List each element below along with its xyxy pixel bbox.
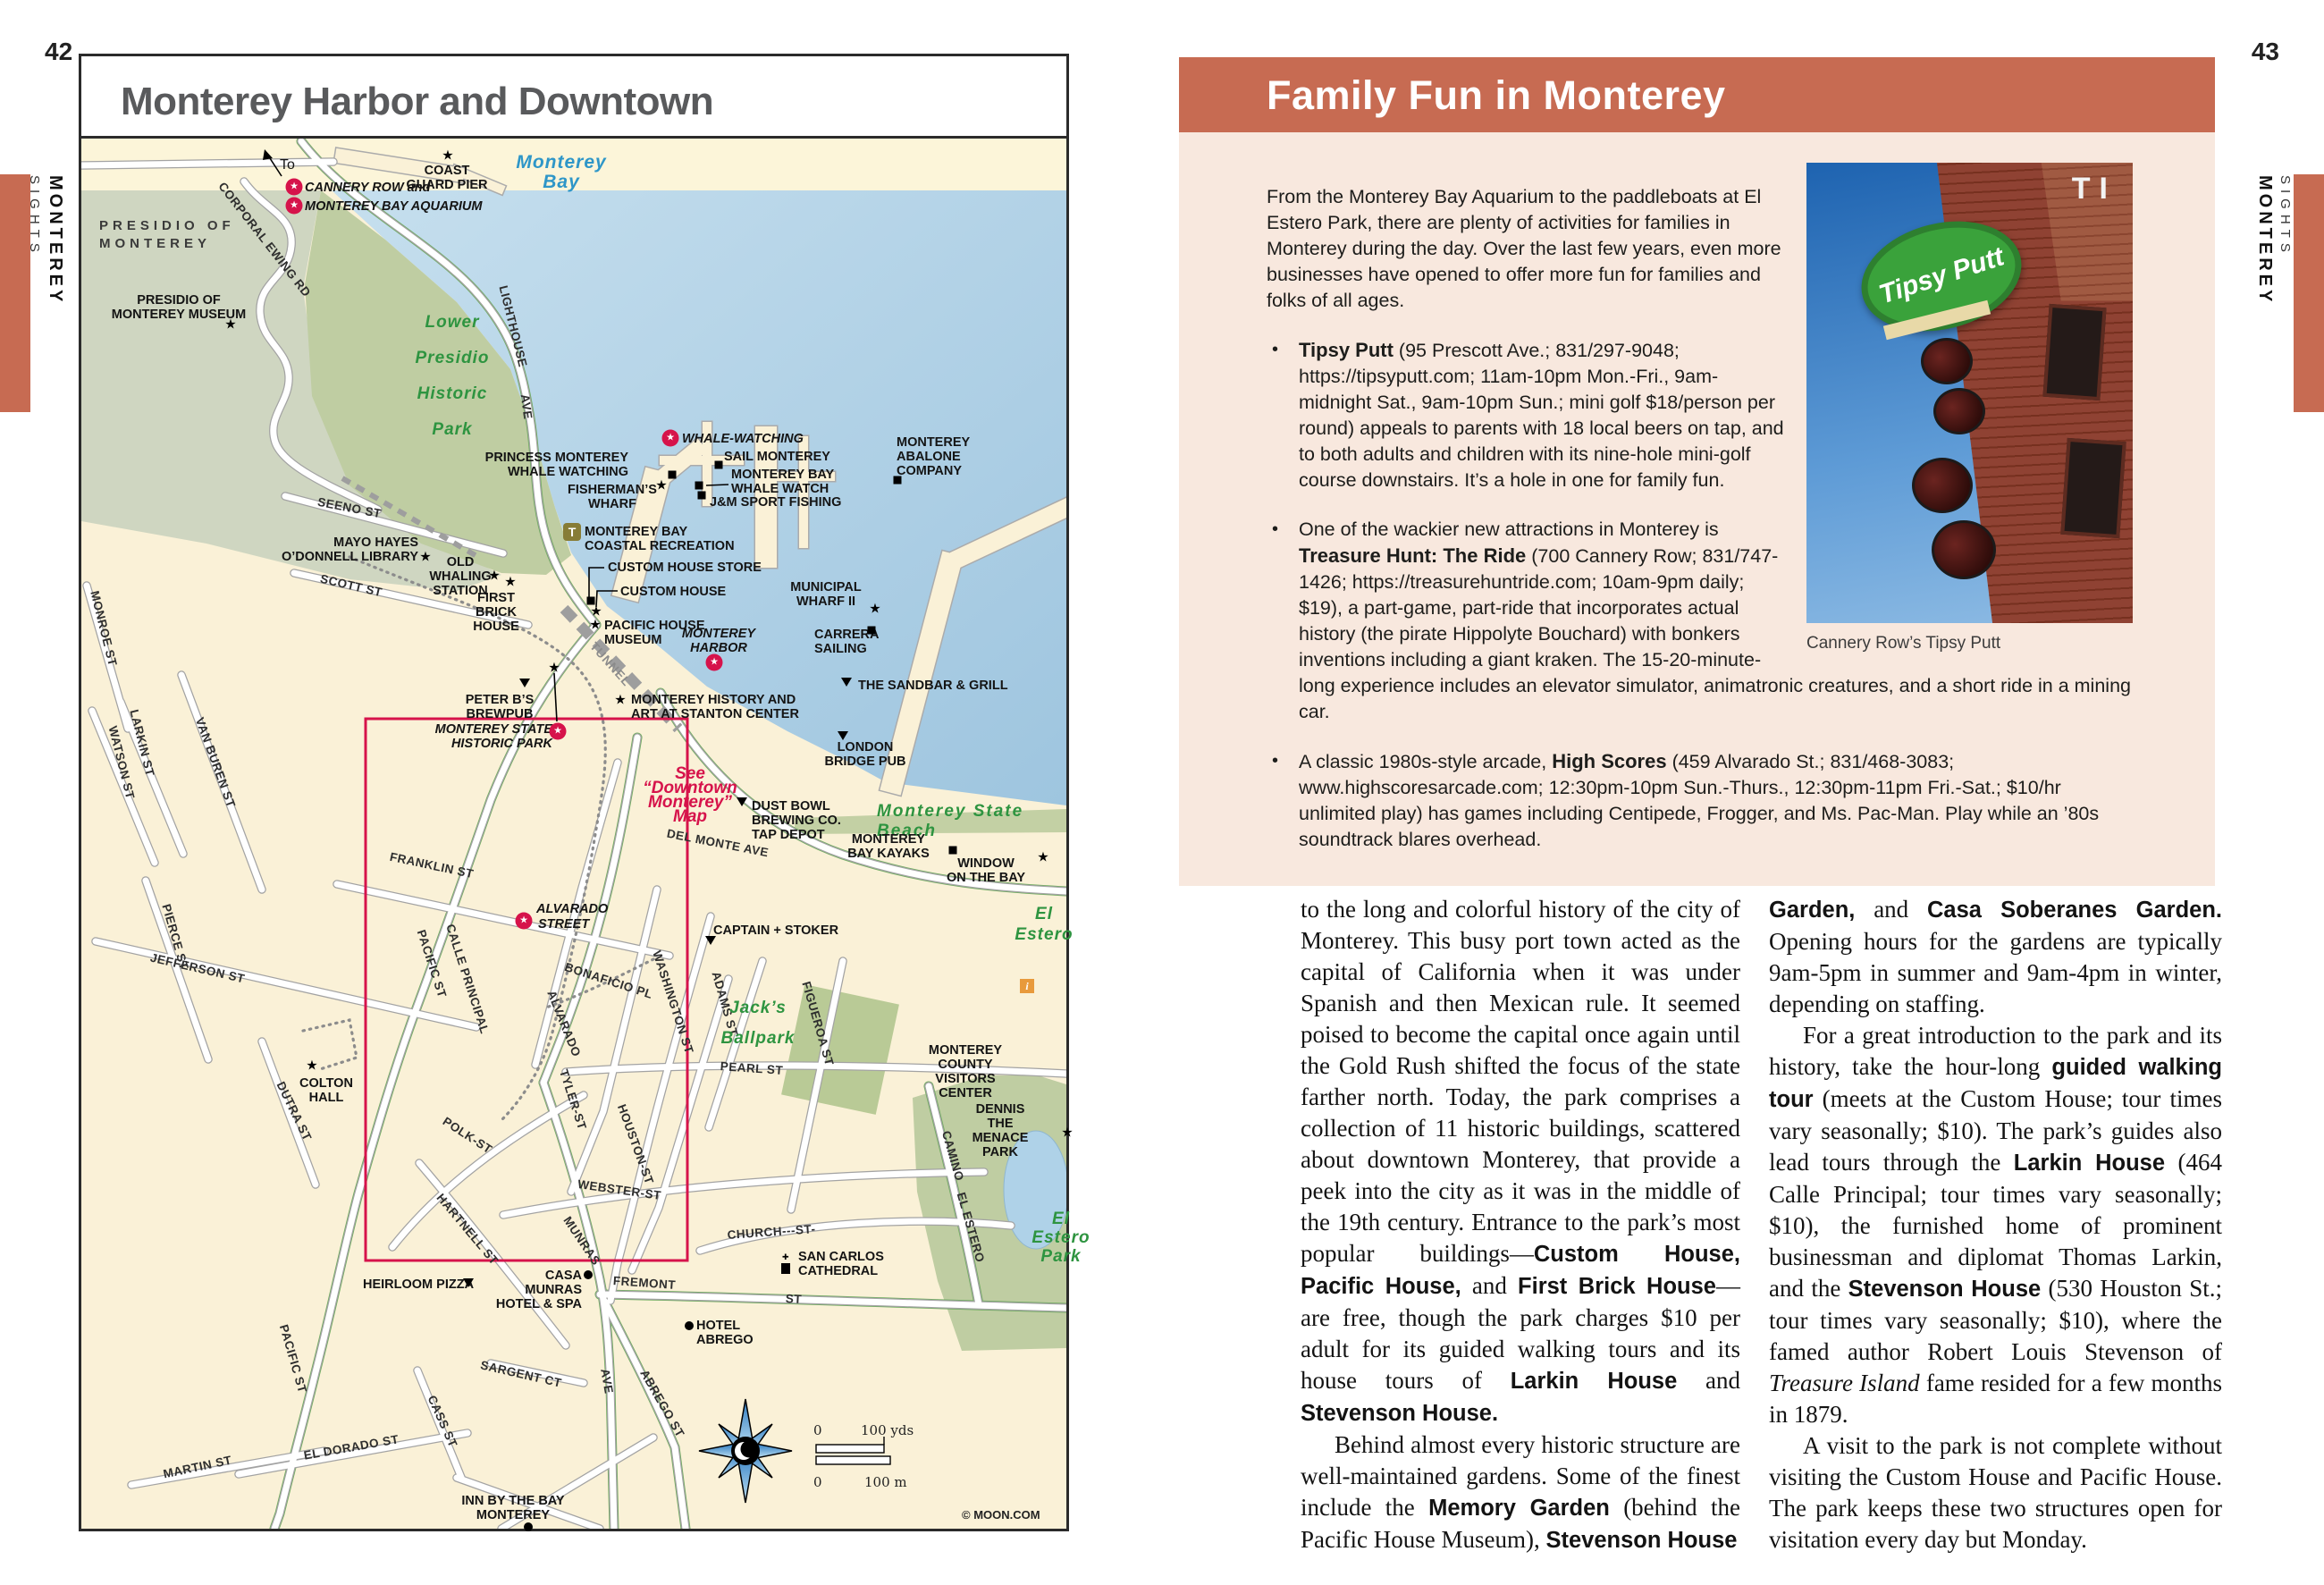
map-label: El Estero Park bbox=[1031, 1210, 1090, 1266]
map-monterey-harbor: ToCANNERY ROW andMONTEREY BAY AQUARIUMCO… bbox=[79, 54, 1069, 1531]
map-label: Jack’s Ballpark bbox=[721, 993, 796, 1054]
star-icon: ★ bbox=[1061, 1126, 1073, 1140]
square-marker-icon bbox=[695, 482, 703, 490]
square-marker-icon bbox=[698, 492, 706, 500]
edge-label-monterey-right: MONTEREY bbox=[2254, 175, 2275, 305]
article-column-right: Garden, and Casa Soberanes Garden. Openi… bbox=[1769, 894, 2222, 1555]
book-spread: 42 SIGHTS MONTEREY 43 MONTEREY SIGHTS bbox=[0, 0, 2324, 1585]
map-label: MONTEREY BAY WHALE WATCH bbox=[731, 468, 834, 496]
map-label: WHALE-WATCHING bbox=[682, 432, 804, 446]
map-label: CAPTAIN + STOKER bbox=[713, 923, 838, 938]
text-run: and bbox=[1461, 1272, 1518, 1299]
page-number-right: 43 bbox=[2239, 38, 2279, 66]
edge-label-monterey-left: MONTEREY bbox=[45, 175, 65, 305]
family-fun-bullet: One of the wackier new attractions in Mo… bbox=[1267, 517, 2133, 725]
star-icon: ★ bbox=[488, 569, 500, 583]
map-label: STREET bbox=[538, 917, 589, 932]
map-title-bar: Monterey Harbor and Downtown bbox=[81, 56, 1066, 139]
sight-star-icon: ★ bbox=[516, 913, 533, 930]
article-paragraph: A visit to the park is not complete with… bbox=[1769, 1430, 2222, 1555]
page-number-left: 42 bbox=[45, 38, 72, 66]
square-marker-icon bbox=[949, 847, 957, 855]
triangle-marker-icon bbox=[705, 936, 716, 945]
map-label: 100 yds bbox=[861, 1422, 914, 1438]
map-label: MONTEREY COUNTY VISITORS CENTER bbox=[915, 1043, 1016, 1100]
sight-star-icon: ★ bbox=[706, 654, 723, 671]
triangle-marker-icon bbox=[737, 797, 747, 806]
map-label: PRINCESS MONTEREY WHALE WATCHING bbox=[485, 451, 628, 479]
map-label: 0 bbox=[813, 1474, 822, 1490]
text-run: One of the wackier new attractions in Mo… bbox=[1299, 518, 1719, 540]
article-paragraph: to the long and colorful history of the … bbox=[1301, 894, 1740, 1429]
article-paragraph: For a great introduction to the park and… bbox=[1769, 1020, 2222, 1430]
map-label: El Estero bbox=[1015, 904, 1073, 945]
map-label: THE SANDBAR & GRILL bbox=[858, 679, 1008, 693]
tipsy-putt-sign-text: Tipsy Putt bbox=[1875, 242, 2008, 311]
map-label: DENNIS THE MENACE PARK bbox=[967, 1102, 1033, 1159]
map-label: PETER B’S BREWPUB bbox=[466, 693, 535, 721]
map-label: MONTEREY STATE HISTORIC PARK bbox=[435, 722, 552, 751]
triangle-marker-icon bbox=[463, 1278, 474, 1287]
map-label: SAIL MONTEREY bbox=[724, 450, 830, 464]
star-icon: ★ bbox=[306, 1059, 317, 1073]
triangle-marker-icon bbox=[841, 678, 852, 687]
family-fun-bullet-list: Tipsy Putt (95 Prescott Ave.; 831/297-90… bbox=[1267, 337, 2133, 853]
star-icon: ★ bbox=[1037, 851, 1048, 864]
star-icon: ★ bbox=[419, 551, 431, 564]
sight-star-icon: ★ bbox=[286, 179, 303, 196]
map-label: FISHERMAN’S WHARF bbox=[568, 483, 657, 511]
map-label: HEIRLOOM PIZZA bbox=[363, 1277, 474, 1292]
italic-term: Treasure Island bbox=[1769, 1370, 1920, 1396]
map-label: WINDOW ON THE BAY bbox=[947, 856, 1025, 885]
edge-label-sights-left: SIGHTS bbox=[27, 175, 42, 257]
family-fun-bullet: A classic 1980s-style arcade, High Score… bbox=[1267, 748, 2133, 853]
map-label: CUSTOM HOUSE STORE bbox=[608, 561, 762, 575]
map-label: MAYO HAYES O’DONNELL LIBRARY bbox=[282, 535, 418, 564]
family-fun-title: Family Fun in Monterey bbox=[1179, 57, 2215, 119]
star-icon: ★ bbox=[869, 603, 880, 616]
map-label: Lower Presidio Historic Park bbox=[416, 305, 490, 448]
square-marker-icon bbox=[868, 627, 876, 635]
bold-term: Stevenson House bbox=[1545, 1528, 1737, 1553]
map-label: INN BY THE BAY MONTEREY bbox=[461, 1494, 564, 1522]
sight-star-icon: ★ bbox=[286, 198, 303, 215]
map-label: J&M SPORT FISHING bbox=[710, 495, 841, 510]
bold-term: Tipsy Putt bbox=[1299, 339, 1394, 361]
text-run: to the long and colorful history of the … bbox=[1301, 896, 1740, 1267]
square-marker-icon bbox=[669, 471, 677, 479]
star-icon: ★ bbox=[504, 576, 516, 589]
map-label: MONTEREY ABALONE COMPANY bbox=[897, 435, 970, 478]
map-label: MUNICIPAL WHARF II bbox=[790, 580, 861, 609]
text-run: A visit to the park is not complete with… bbox=[1769, 1432, 2222, 1553]
map-label: MONTEREY BAY KAYAKS bbox=[847, 832, 930, 861]
star-icon: ★ bbox=[590, 605, 602, 619]
edge-tab-right bbox=[2294, 174, 2324, 412]
bold-term: Larkin House bbox=[1511, 1369, 1678, 1394]
map-label: To bbox=[280, 157, 295, 173]
map-label: SAN CARLOS CATHEDRAL bbox=[798, 1250, 884, 1278]
star-icon: ★ bbox=[614, 694, 626, 707]
text-run: (700 Cannery Row; 831/747-1426; https://… bbox=[1299, 545, 2131, 722]
bold-term: First Brick House bbox=[1518, 1274, 1716, 1299]
map-label: MONTEREY BAY COASTAL RECREATION bbox=[585, 525, 735, 553]
text-run: A classic 1980s-style arcade, bbox=[1299, 751, 1552, 772]
star-icon: ★ bbox=[442, 149, 453, 163]
church-icon bbox=[779, 1256, 793, 1274]
map-label: © MOON.COM bbox=[962, 1508, 1040, 1522]
map-label: DUST BOWL BREWING CO. TAP DEPOT bbox=[752, 799, 841, 842]
article-column-left: to the long and colorful history of the … bbox=[1301, 894, 1740, 1556]
text-run: and bbox=[1677, 1367, 1740, 1394]
article-paragraph: Garden, and Casa Soberanes Garden. Openi… bbox=[1769, 894, 2222, 1020]
map-label: Monterey Bay bbox=[516, 153, 606, 192]
map-label: FIRST BRICK HOUSE bbox=[473, 591, 519, 634]
map-label: MONTEREY HARBOR bbox=[682, 627, 755, 655]
triangle-marker-icon bbox=[519, 679, 530, 687]
map-label: PRESIDIO OF MONTEREY bbox=[99, 217, 235, 253]
bold-term: Memory Garden bbox=[1428, 1496, 1610, 1521]
map-label: MONTEREY HISTORY AND ART AT STANTON CENT… bbox=[631, 693, 799, 721]
map-label: CUSTOM HOUSE bbox=[620, 585, 726, 599]
article-paragraph: Behind almost every historic structure a… bbox=[1301, 1429, 1740, 1556]
text-run: Opening hours for the gardens are typica… bbox=[1769, 928, 2222, 1017]
map-label: LONDON BRIDGE PUB bbox=[824, 740, 905, 769]
text-run: and bbox=[1855, 896, 1927, 923]
star-icon: ★ bbox=[655, 479, 667, 493]
sight-star-icon: ★ bbox=[662, 430, 679, 447]
dot-marker-icon bbox=[524, 1522, 533, 1531]
family-fun-bullet: Tipsy Putt (95 Prescott Ave.; 831/297-90… bbox=[1267, 337, 2133, 493]
square-marker-icon bbox=[894, 476, 902, 485]
info-icon: i bbox=[1020, 979, 1034, 993]
square-marker-icon bbox=[715, 461, 723, 469]
dot-marker-icon bbox=[685, 1321, 694, 1330]
triangle-marker-icon bbox=[838, 731, 848, 740]
star-icon: ★ bbox=[589, 619, 601, 632]
map-label: 0 bbox=[813, 1422, 822, 1438]
dot-marker-icon bbox=[584, 1270, 593, 1279]
map-title: Monterey Harbor and Downtown bbox=[81, 56, 1066, 124]
map-label: COLTON HALL bbox=[299, 1076, 353, 1105]
map-label: HOTEL ABREGO bbox=[696, 1319, 754, 1347]
bold-term: Garden, bbox=[1769, 898, 1855, 923]
family-fun-header: Family Fun in Monterey bbox=[1179, 57, 2215, 132]
map-label: 100 m bbox=[864, 1474, 907, 1490]
edge-tab-left bbox=[0, 174, 30, 412]
star-icon: ★ bbox=[224, 318, 236, 332]
family-fun-body: TI Tipsy Putt Cannery Row’s Tipsy Putt F… bbox=[1179, 132, 2215, 853]
family-fun-box: Family Fun in Monterey TI Tipsy Putt bbox=[1179, 57, 2215, 886]
transit-icon: T bbox=[563, 523, 581, 541]
star-icon: ★ bbox=[548, 662, 560, 675]
map-label: ALVARADO bbox=[536, 902, 608, 916]
edge-label-sights-right: SIGHTS bbox=[2278, 175, 2293, 257]
bold-term: Treasure Hunt: The Ride bbox=[1299, 544, 1526, 567]
bold-term: Casa Soberanes Garden. bbox=[1927, 898, 2222, 923]
bold-term: Stevenson House bbox=[1848, 1277, 2042, 1302]
map-label: MONTEREY BAY AQUARIUM bbox=[305, 199, 482, 214]
bold-term: Stevenson House. bbox=[1301, 1401, 1498, 1426]
bold-term: Larkin House bbox=[2014, 1151, 2165, 1176]
map-label: ST bbox=[785, 1292, 802, 1306]
map-label: See “Downtown Monterey” Map bbox=[643, 767, 737, 824]
text-run: (95 Prescott Ave.; 831/297-9048; https:/… bbox=[1299, 340, 1784, 491]
map-label: COAST GUARD PIER bbox=[406, 164, 487, 192]
bold-term: High Scores bbox=[1552, 750, 1666, 772]
sight-star-icon: ★ bbox=[550, 723, 567, 740]
map-label: CASA MUNRAS HOTEL & SPA bbox=[496, 1269, 582, 1311]
building-sign-letters: TI bbox=[2072, 172, 2117, 207]
